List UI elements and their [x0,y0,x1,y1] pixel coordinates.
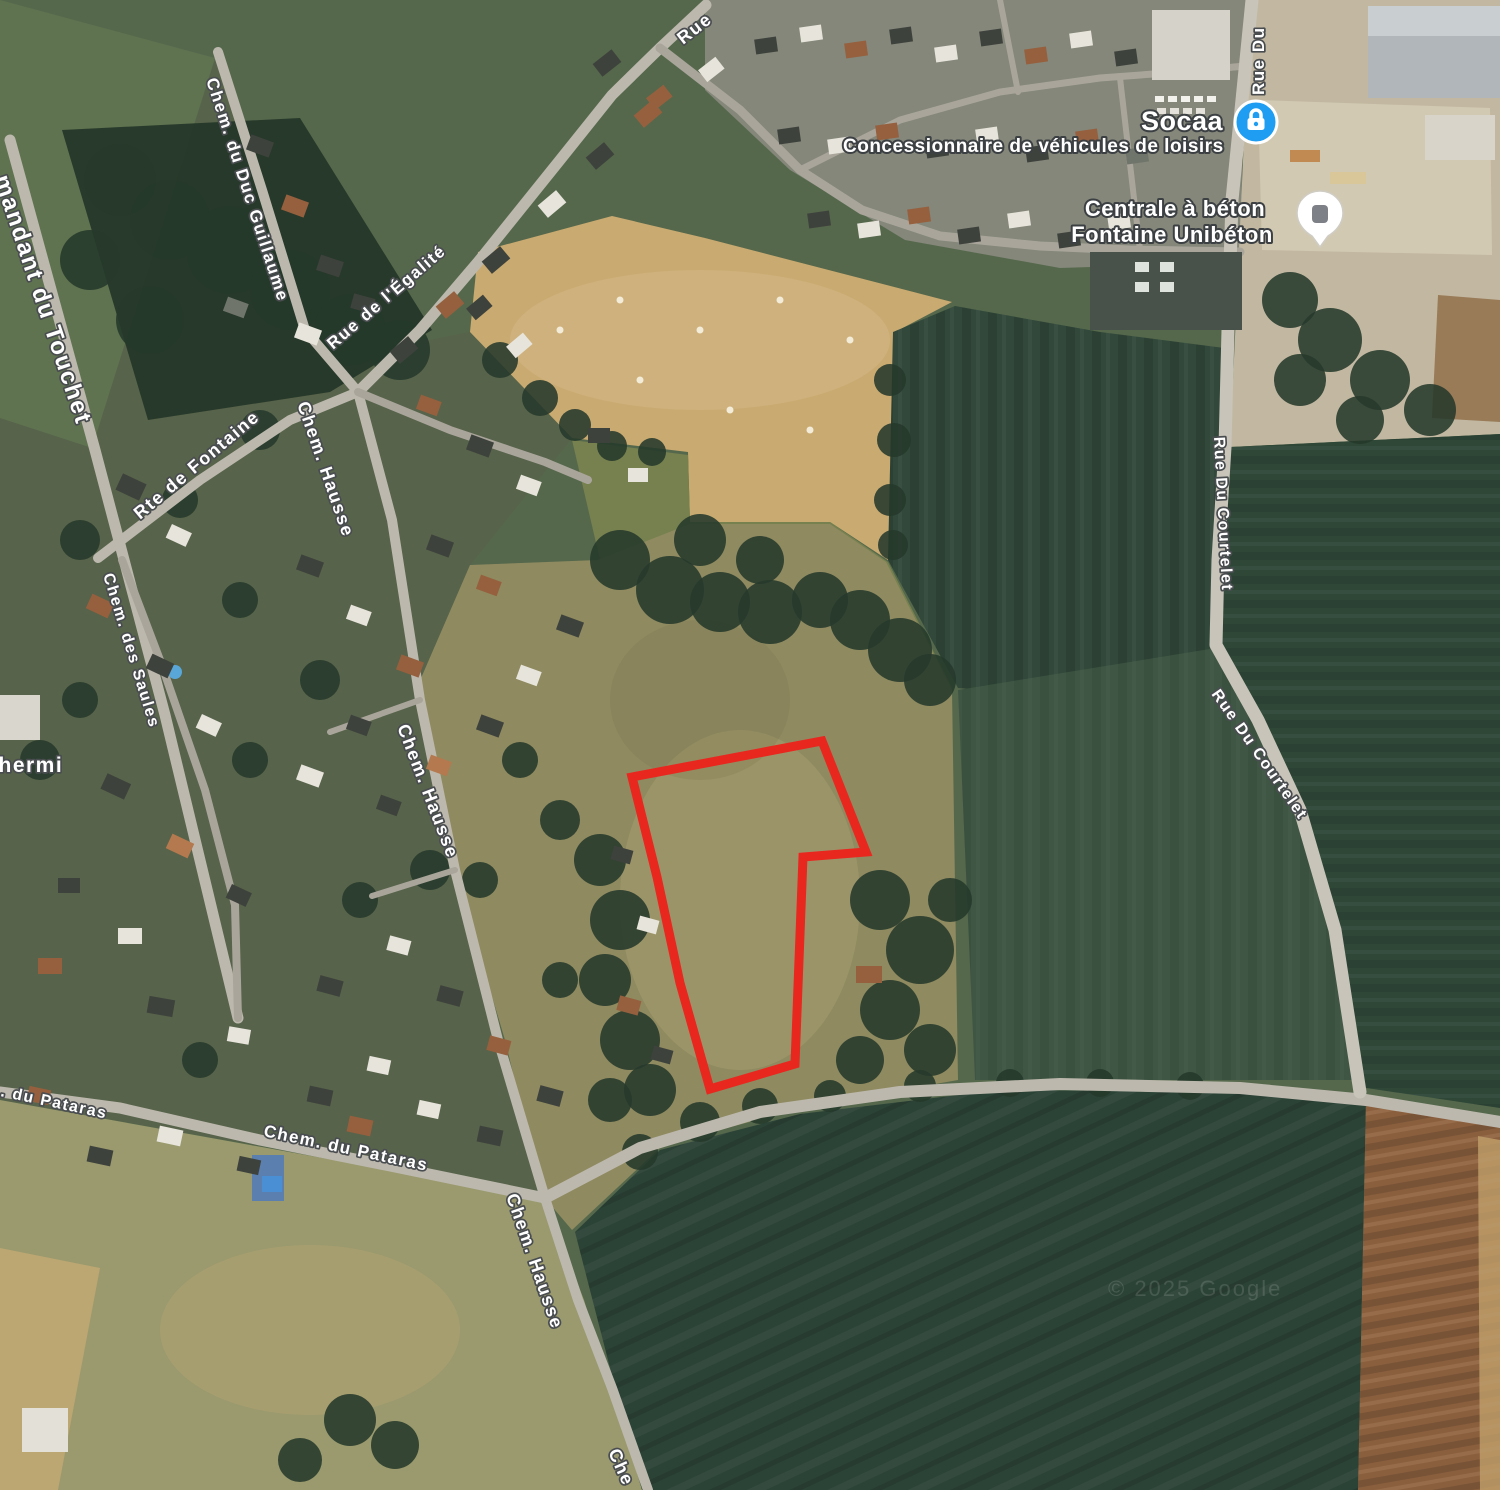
map-canvas[interactable]: mandant du Touchet Chem. du Duc Guillaum… [0,0,1500,1490]
attribution-watermark: © 2025 Google [1108,1276,1282,1301]
poi-unibeton-line2: Fontaine Unibéton [1071,222,1273,247]
poi-socaa-title[interactable]: Socaa [1141,106,1224,136]
satellite-map: mandant du Touchet Chem. du Duc Guillaum… [0,0,1500,1490]
street-label-thermi: thermi [0,754,63,777]
socaa-shop-icon[interactable] [1235,101,1277,143]
poi-unibeton-line1[interactable]: Centrale à béton [1085,196,1265,221]
poi-socaa-subtitle: Concessionnaire de véhicules de loisirs [843,136,1224,157]
street-label-rue-du-partial: Rue Du [1249,27,1268,96]
